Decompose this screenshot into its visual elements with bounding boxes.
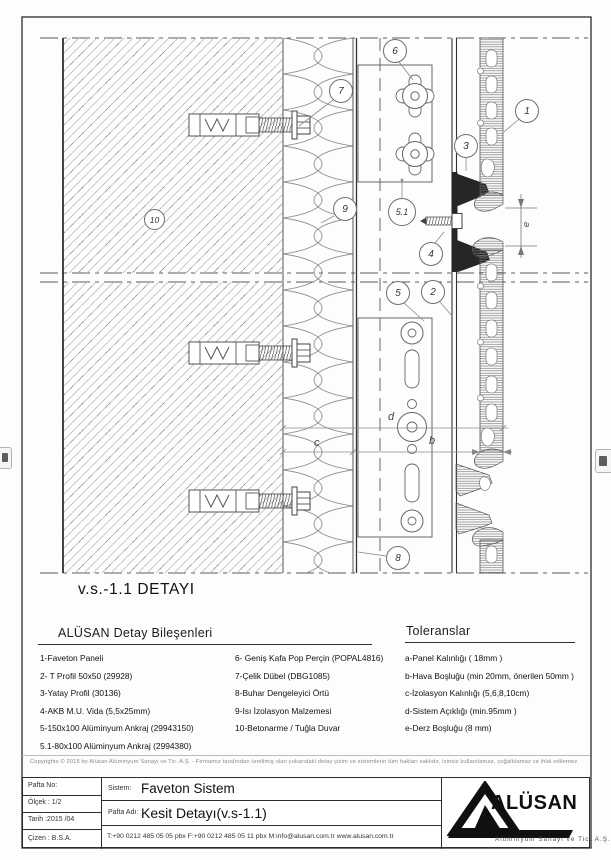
anchor-bracket-lower: [358, 318, 432, 537]
faveton-panel: [456, 38, 503, 573]
tolerance-item: a-Panel Kalınlığı ( 18mm ): [405, 650, 574, 668]
component-item: 4-AKB M.U. Vida (5,5x25mm): [40, 703, 194, 721]
callout-1: 1: [515, 99, 539, 123]
pafta-adi-label: Pafta Adı:: [108, 809, 138, 816]
callout-9: 9: [333, 197, 357, 221]
tolerance-item: e-Derz Boşluğu (8 mm): [405, 720, 574, 738]
callout-5: 5: [386, 281, 410, 305]
tb-divider-2: [441, 778, 442, 849]
dim-label-e: e: [521, 222, 532, 227]
alusan-logo-subtitle: Alüminyum Sanayi ve Tic. A.Ş.: [495, 836, 611, 843]
left-punch-hole: [2, 453, 8, 462]
olcek-value: Ölçek : 1/2: [28, 799, 61, 806]
tb-divider-1: [101, 778, 102, 849]
components-heading: ALÜSAN Detay Bileşenleri: [58, 626, 212, 640]
tolerance-item: b-Hava Boşluğu (min 20mm, önerilen 50mm …: [405, 668, 574, 686]
callout-3: 3: [454, 134, 478, 158]
component-item: 7-Çelik Dübel (DBG1085): [235, 668, 383, 686]
callout-8: 8: [386, 546, 410, 570]
right-punch-mark: [595, 449, 611, 473]
tb-row-line: [101, 825, 441, 826]
anchor-bracket-upper: [358, 65, 434, 182]
component-item: 3-Yatay Profil (30136): [40, 685, 194, 703]
copyright-rule: [22, 755, 590, 756]
dim-label-c: c: [314, 437, 320, 449]
tolerance-item: c-İzolasyon Kalınlığı (5,6,8,10cm): [405, 685, 574, 703]
pafta-adi-value: Kesit Detayı(v.s-1.1): [141, 805, 267, 821]
component-item: 10-Betonarme / Tuğla Duvar: [235, 720, 383, 738]
drawing-sheet: 6 7 1 3 9 5.1 4 5 2 8 10 e d b c v.s.-1.…: [0, 0, 611, 860]
callout-2: 2: [421, 280, 445, 304]
tb-row-line: [101, 800, 441, 801]
cizen-value: Çizen : B.S.A.: [28, 835, 72, 842]
pafta-no-label: Pafta No:: [28, 782, 57, 789]
alusan-logo-text: ALÜSAN: [491, 792, 577, 815]
tolerances-heading: Toleranslar: [406, 624, 470, 638]
component-item: 1-Faveton Paneli: [40, 650, 194, 668]
tb-row-line: [23, 795, 101, 796]
component-item: 5.1-80x100 Alüminyum Ankraj (2994380): [40, 738, 194, 756]
components-col1: 1-Faveton Paneli 2- T Profil 50x50 (2992…: [40, 650, 194, 756]
dim-label-d: d: [388, 411, 394, 423]
tolerances-list: a-Panel Kalınlığı ( 18mm ) b-Hava Boşluğ…: [405, 650, 574, 738]
components-col2: 6- Geniş Kafa Pop Perçin (POPAL4816) 7-Ç…: [235, 650, 383, 738]
sistem-value: Faveton Sistem: [141, 781, 235, 796]
screw: [420, 214, 462, 229]
tb-row-line: [23, 829, 101, 830]
title-block: Pafta No: Ölçek : 1/2 Tarih :2015 /04 Çi…: [22, 777, 590, 848]
component-item: 6- Geniş Kafa Pop Perçin (POPAL4816): [235, 650, 383, 668]
callout-10: 10: [144, 209, 165, 230]
tb-row-line: [23, 812, 101, 813]
component-item: 5-150x100 Alüminyum Ankraj (29943150): [40, 720, 194, 738]
callout-4: 4: [419, 242, 443, 266]
components-rule: [38, 644, 372, 645]
component-item: 9-Isı İzolasyon Malzemesi: [235, 703, 383, 721]
right-punch-hole: [599, 456, 607, 466]
tarih-value: Tarih :2015 /04: [28, 816, 74, 823]
component-item: 2- T Profil 50x50 (29928): [40, 668, 194, 686]
copyright-line: Copyrights © 2015 by Alüsan Alüminyum Sa…: [30, 759, 586, 765]
callout-5-1: 5.1: [388, 198, 416, 226]
contact-line: T:+90 0212 485 05 05 pbx F:+90 0212 485 …: [107, 833, 394, 840]
callout-7: 7: [329, 79, 353, 103]
component-item: 8-Buhar Dengeleyici Örtü: [235, 685, 383, 703]
tolerance-item: d-Sistem Açıklığı (min.95mm ): [405, 703, 574, 721]
callout-6: 6: [383, 39, 407, 63]
sistem-label: Sistem:: [108, 785, 131, 792]
left-punch-mark: [0, 447, 12, 469]
detail-title: v.s.-1.1 DETAYI: [78, 581, 195, 599]
t-profile: [452, 38, 457, 573]
tolerances-rule: [405, 642, 575, 643]
dim-label-b: b: [429, 435, 435, 447]
